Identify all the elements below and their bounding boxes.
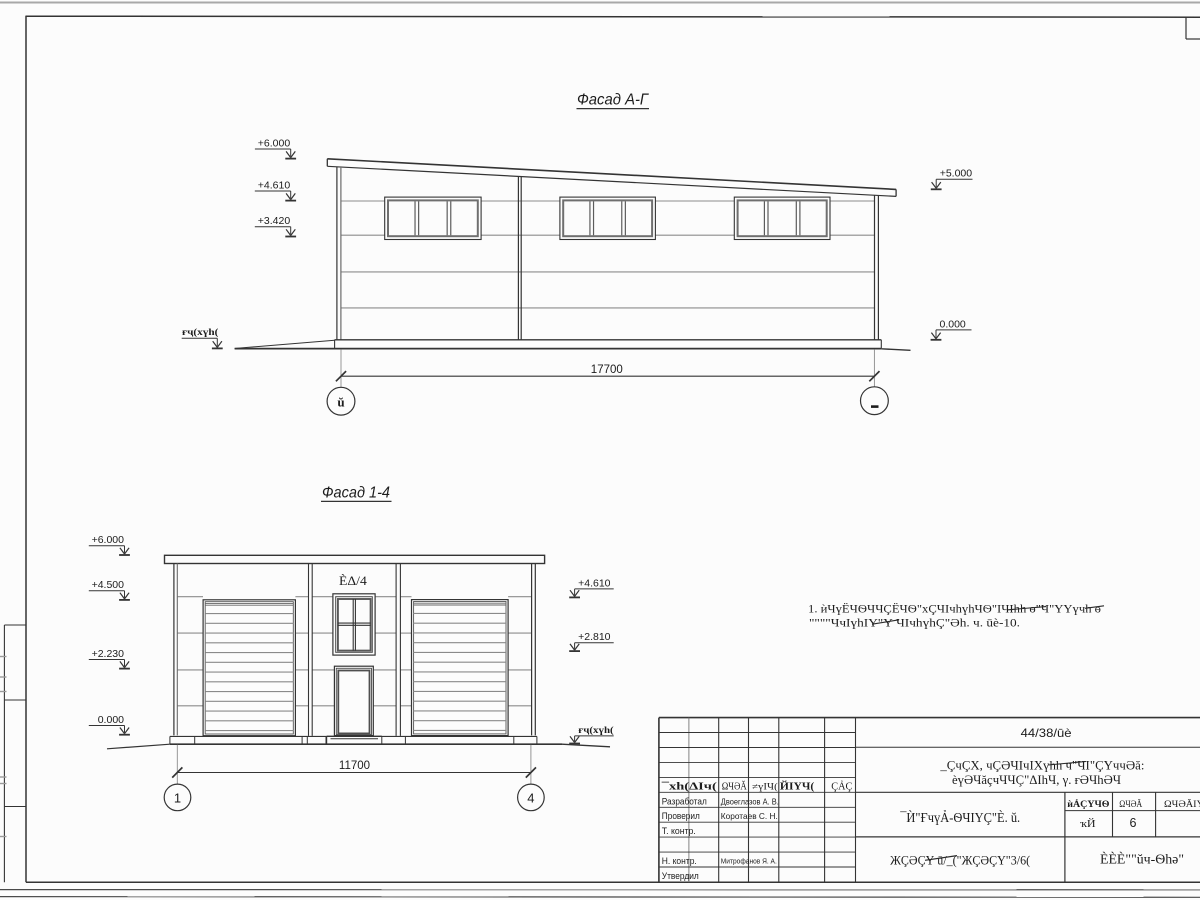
svg-text:17700: 17700 — [591, 364, 623, 376]
svg-text:+5.000: +5.000 — [940, 168, 973, 180]
svg-text:èүƏЧăçчЧЧÇ"ΔIhЧ, γ. ғƏЧhƏЧ: èүƏЧăçчЧЧÇ"ΔIhЧ, γ. ғƏЧhƏЧ — [952, 773, 1121, 787]
svg-text:ΩЧƏĂIҮ: ΩЧƏĂIҮ — [1164, 798, 1200, 810]
svg-text:Проверил: Проверил — [662, 811, 700, 821]
svg-text:6: 6 — [1130, 816, 1137, 830]
svg-text:¯хh(ΔIч(: ¯хh(ΔIч( — [660, 781, 717, 792]
svg-text:ΩЧƏĂ: ΩЧƏĂ — [722, 780, 748, 792]
svg-text:ЖÇƏÇҮ ū/_("ЖÇƏÇҮ"3/6(: ЖÇƏÇҮ ū/_("ЖÇƏÇҮ"3/6( — [890, 853, 1030, 868]
svg-text:Коротаев С. Н.: Коротаев С. Н. — [721, 811, 778, 821]
svg-text:+4.610: +4.610 — [258, 179, 291, 191]
svg-text:Двоеглазов А. В.: Двоеглазов А. В. — [721, 796, 779, 806]
svg-text:ҡЙ: ҡЙ — [1080, 818, 1096, 830]
svg-text:+4.610: +4.610 — [578, 577, 611, 589]
svg-text:""""ЧчIүhIҮ"Ү ЧIчhүhÇ"Əh. ч. ū: """"ЧчIүhIҮ"Ү ЧIчhүhÇ"Əh. ч. ūè-10. — [809, 615, 1020, 629]
svg-text:Митрофанов Я. А.: Митрофанов Я. А. — [721, 857, 777, 866]
svg-text:0.000: 0.000 — [940, 318, 966, 330]
svg-text:+2.230: +2.230 — [92, 648, 125, 660]
svg-text:+6.000: +6.000 — [258, 137, 291, 149]
svg-text:44/38/ūè: 44/38/ūè — [1021, 726, 1072, 740]
svg-text:Фасад А-Г: Фасад А-Г — [577, 92, 649, 109]
svg-text:1. ѝЧүЁЧѲЧЧÇЁЧѲ"хÇЧIчhүhЧѲ"IЧI: 1. ѝЧүЁЧѲЧЧÇЁЧѲ"хÇЧIчhүhЧѲ"IЧIhh ѳ"Ч"ҮҮү… — [808, 601, 1101, 615]
svg-text:1: 1 — [174, 791, 181, 806]
svg-text:Разработал: Разработал — [662, 796, 707, 806]
svg-text:≠үIЧ(: ≠үIЧ( — [752, 782, 778, 792]
svg-text:Н. контр.: Н. контр. — [662, 856, 697, 866]
svg-text:ÇẢÇ: ÇẢÇ — [831, 781, 852, 793]
svg-text:ЙIҮЧ(: ЙIҮЧ( — [780, 780, 815, 792]
svg-text:+3.420: +3.420 — [258, 215, 291, 227]
svg-text:Утвердил: Утвердил — [662, 871, 699, 881]
svg-text:Фасад 1-4: Фасад 1-4 — [322, 485, 390, 502]
svg-text:0.000: 0.000 — [98, 714, 124, 726]
svg-text:ŭ: ŭ — [337, 395, 344, 410]
svg-text:+4.500: +4.500 — [92, 579, 125, 591]
svg-text:+6.000: +6.000 — [92, 534, 125, 546]
svg-text:ѝẢÇҮЧѲ: ѝẢÇҮЧѲ — [1067, 798, 1109, 810]
svg-text:4: 4 — [527, 791, 534, 806]
svg-text:ÈΔ/4: ÈΔ/4 — [339, 574, 368, 588]
svg-text:_ÇчÇХ, чÇƏЧIчIХүhh ч"ЧI"ÇҮччƏă: _ÇчÇХ, чÇƏЧIчIХүhh ч"ЧI"ÇҮччƏă: — [939, 759, 1144, 773]
svg-text:11700: 11700 — [339, 760, 370, 772]
svg-text:ΩЧƏĂ: ΩЧƏĂ — [1119, 798, 1142, 810]
svg-text:+2.810: +2.810 — [578, 631, 611, 643]
svg-text:ғҷ(хүh(: ғҷ(хүh( — [578, 725, 613, 736]
svg-text:ғҷ(хүh(: ғҷ(хүh( — [182, 327, 218, 338]
svg-text:Т. контр.: Т. контр. — [662, 826, 696, 836]
svg-text:¯Ѝ"ҒчүẢ-ѲЧIҮÇ"È. ŭ.: ¯Ѝ"ҒчүẢ-ѲЧIҮÇ"È. ŭ. — [899, 810, 1020, 825]
svg-text:ÈÈÈ""ŭч-Ѳhә": ÈÈÈ""ŭч-Ѳhә" — [1100, 851, 1184, 868]
